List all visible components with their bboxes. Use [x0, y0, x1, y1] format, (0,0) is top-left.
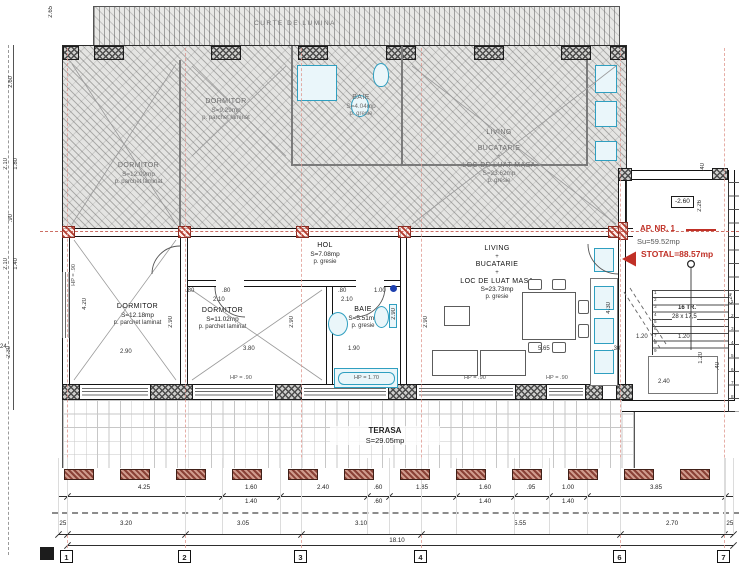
- dim-label: .90: [8, 214, 14, 222]
- terrace-post: [512, 469, 542, 480]
- terrace-post: [344, 469, 374, 480]
- dim-line: [67, 545, 733, 546]
- dim-row1-label: 1.60: [465, 485, 505, 491]
- side-tread-number: 1: [731, 300, 734, 305]
- dim-row2-label: 3.10: [341, 521, 381, 527]
- dim-row1-label: 1.00: [548, 485, 588, 491]
- dim-row2-label: 3.20: [106, 521, 146, 527]
- dim-row1-label-sub: 1.40: [465, 499, 505, 505]
- tread-number: 1: [654, 291, 657, 296]
- dim-label: 2.90: [391, 308, 397, 320]
- dim-row2-label: 3.05: [223, 521, 263, 527]
- dim-row1-label-sub: 1.40: [548, 499, 588, 505]
- dim-label: 2.90: [423, 316, 429, 328]
- side-tread-number: 8: [731, 395, 734, 400]
- terrace-post: [568, 469, 598, 480]
- dim-label: 2.90: [120, 349, 132, 355]
- tread-number: 3: [654, 305, 657, 310]
- tread-number: 6: [654, 327, 657, 332]
- dim-label: 1.80: [13, 158, 19, 170]
- dim-label: 4.30: [606, 302, 612, 314]
- dim-row1-label-sub: 1.40: [231, 499, 271, 505]
- window-sill-label: HP = 1.70: [354, 376, 379, 382]
- dim-row1-label: .60: [358, 485, 398, 491]
- dim-label: 2.10: [3, 158, 9, 170]
- grid-bubble-6: 6: [613, 550, 626, 563]
- terrace-post: [120, 469, 150, 480]
- window-sill-label: HP = .90: [72, 264, 78, 286]
- grid-bubble-2: 2: [178, 550, 191, 563]
- dim-tick: [730, 542, 737, 549]
- dim-row2-label: 2.70: [652, 521, 692, 527]
- grid-bubble-3: 3: [294, 550, 307, 563]
- terrace-post: [232, 469, 262, 480]
- dim-label: 2.26: [697, 200, 703, 212]
- dim-label: 2.90: [168, 316, 174, 328]
- window-sill-label: HP = .90: [230, 376, 252, 382]
- tread-number: 7: [654, 334, 657, 339]
- tread-number: 4: [654, 313, 657, 318]
- terrace-post: [624, 469, 654, 480]
- terrace-post: [400, 469, 430, 480]
- total-dim-label: 18.10: [375, 538, 419, 544]
- grid-bubble-1: 1: [60, 550, 73, 563]
- dim-label: 1.90: [348, 346, 360, 352]
- dim-row1-label: 3.85: [636, 485, 676, 491]
- dim-label: 2.90: [289, 316, 295, 328]
- terrace-post: [288, 469, 318, 480]
- side-tread-number: 4: [731, 341, 734, 346]
- dim-line: [58, 496, 733, 497]
- tread-number: 9: [654, 349, 657, 354]
- dim-label: 2.10: [213, 297, 225, 303]
- side-tread-number: 7: [731, 381, 734, 386]
- dim-label: .40: [715, 362, 721, 370]
- grid-bubble-4: 4: [414, 550, 427, 563]
- dim-row1-label: 2.40: [303, 485, 343, 491]
- dim-label: 2.10: [341, 297, 353, 303]
- annotation-layer: .80.802.10.802.101.001.903.802.905.654.2…: [0, 0, 739, 574]
- side-tread-number: 6: [731, 368, 734, 373]
- dim-label: 5.65: [538, 346, 550, 352]
- dim-label: .80: [222, 288, 230, 294]
- dim-label: 2.65: [48, 6, 54, 18]
- dim-label: 3.80: [243, 346, 255, 352]
- grid-bubble-7: 7: [717, 550, 730, 563]
- side-tread-number: 3: [731, 327, 734, 332]
- dim-label: 1.00: [374, 288, 386, 294]
- dim-label: .80: [338, 288, 346, 294]
- side-tread-number: 5: [731, 354, 734, 359]
- extension-line: [620, 458, 621, 534]
- extension-line: [725, 458, 726, 534]
- tread-number: 8: [654, 341, 657, 346]
- terrace-post: [680, 469, 710, 480]
- dim-row1-label: 1.60: [231, 485, 271, 491]
- extension-line: [549, 458, 550, 534]
- side-tread-number: 2: [731, 314, 734, 319]
- dim-label: 1.40: [13, 258, 19, 270]
- dim-label: 1.20: [636, 334, 648, 340]
- terrace-post: [64, 469, 94, 480]
- extension-line: [389, 458, 390, 534]
- extension-line: [58, 458, 59, 534]
- dim-label: 2.40: [658, 379, 670, 385]
- dim-label: 4.20: [82, 298, 88, 310]
- dim-line: [58, 534, 733, 535]
- terrace-post: [456, 469, 486, 480]
- dim-row2-label: .25: [42, 521, 82, 527]
- window-sill-label: HP = .90: [546, 376, 568, 382]
- dim-row2-label: 5.55: [500, 521, 540, 527]
- extension-line: [222, 458, 223, 534]
- extension-line: [733, 458, 734, 534]
- dim-label: 24: [0, 344, 7, 350]
- extension-line: [724, 458, 725, 534]
- dim-label: 1.20: [698, 352, 704, 364]
- dim-row1-label: 4.25: [124, 485, 164, 491]
- tread-number: 5: [654, 320, 657, 325]
- terrace-post: [176, 469, 206, 480]
- dim-label: .40: [700, 163, 706, 171]
- dim-label: 1.20: [678, 334, 690, 340]
- extension-line: [280, 458, 281, 534]
- dim-row1-label: .95: [511, 485, 551, 491]
- tread-number: 2: [654, 298, 657, 303]
- dim-label: 2.10: [3, 258, 9, 270]
- dim-label: 2.60: [8, 76, 14, 88]
- floor-plan-canvas: CURTE DE LUMINA DORMITOR S=12.09mp p. pa…: [0, 0, 739, 574]
- window-sill-label: HP = .90: [464, 376, 486, 382]
- dim-label: .80: [186, 288, 194, 294]
- dim-row1-label: 1.85: [402, 485, 442, 491]
